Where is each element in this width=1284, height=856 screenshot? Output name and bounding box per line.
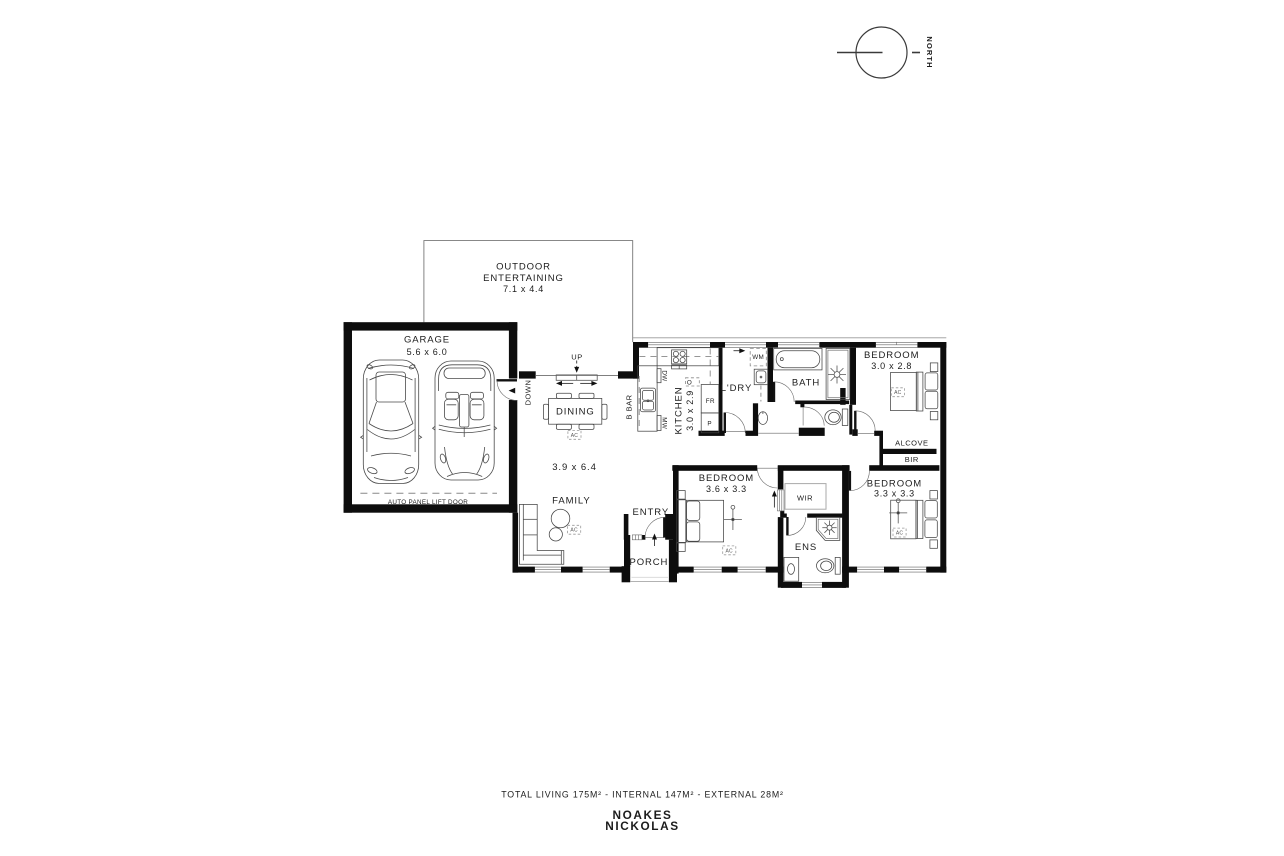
svg-text:P: P [707,421,712,428]
svg-text:UP: UP [571,353,582,362]
svg-text:3.3 x 3.3: 3.3 x 3.3 [874,489,915,499]
svg-text:O: O [687,380,692,387]
svg-text:AC: AC [571,433,579,439]
svg-text:7.1 x 4.4: 7.1 x 4.4 [503,284,544,294]
svg-text:B BAR: B BAR [625,394,634,419]
svg-text:BEDROOM: BEDROOM [864,350,919,361]
svg-text:ENTRY: ENTRY [633,507,670,518]
svg-text:TOTAL LIVING 175M² - INTERNAL: TOTAL LIVING 175M² - INTERNAL 147M² - EX… [501,790,784,800]
svg-text:GARAGE: GARAGE [404,335,450,346]
svg-text:DINING: DINING [556,407,595,418]
svg-text:3.0 x 2.9: 3.0 x 2.9 [685,390,695,431]
svg-text:BEDROOM: BEDROOM [867,478,922,489]
svg-text:BEDROOM: BEDROOM [699,473,754,484]
svg-text:3.6 x 3.3: 3.6 x 3.3 [706,484,747,494]
svg-text:WM: WM [752,354,764,361]
svg-text:PORCH: PORCH [629,557,668,568]
svg-text:3.0 x 2.8: 3.0 x 2.8 [871,361,912,371]
svg-text:L'DRY: L'DRY [721,383,752,394]
svg-text:3.9 x 6.4: 3.9 x 6.4 [552,462,597,473]
svg-text:OUTDOOR: OUTDOOR [496,262,551,273]
svg-text:AUTO PANEL LIFT DOOR: AUTO PANEL LIFT DOOR [388,499,468,506]
svg-text:AC: AC [896,531,904,537]
svg-text:NORTH: NORTH [925,36,934,68]
svg-text:AC: AC [570,528,578,534]
svg-text:WIR: WIR [797,493,813,502]
svg-text:BATH: BATH [792,377,820,388]
svg-text:AC: AC [894,390,902,396]
svg-text:ENS: ENS [795,542,817,553]
svg-text:5.6 x 6.0: 5.6 x 6.0 [407,347,448,357]
svg-text:ENTERTAINING: ENTERTAINING [483,273,564,284]
svg-text:MW: MW [661,417,668,429]
svg-text:ALCOVE: ALCOVE [895,438,928,447]
svg-text:FR: FR [706,398,715,405]
svg-text:DOWN: DOWN [523,380,532,406]
svg-text:DW: DW [661,370,668,381]
svg-text:BIR: BIR [905,455,919,464]
svg-text:NICKOLAS: NICKOLAS [605,819,679,833]
svg-text:FAMILY: FAMILY [552,495,590,506]
svg-text:AC: AC [726,548,734,554]
svg-text:KITCHEN: KITCHEN [674,387,685,435]
